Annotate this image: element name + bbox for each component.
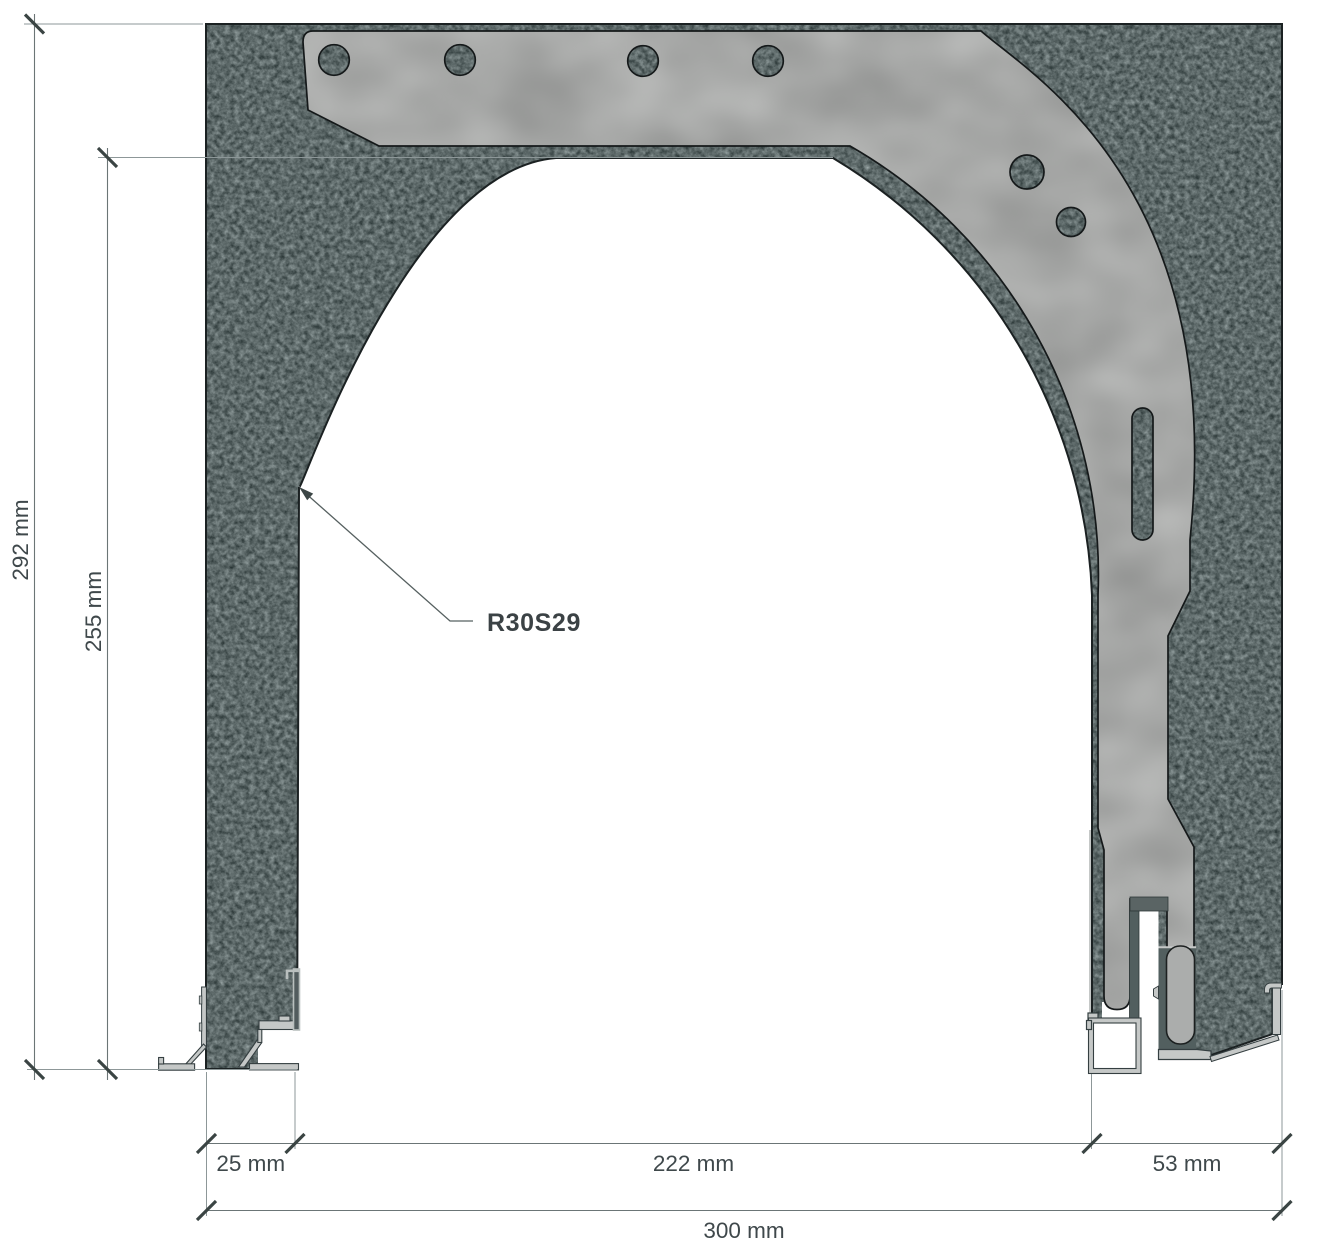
- svg-text:255 mm: 255 mm: [81, 571, 106, 652]
- svg-text:222 mm: 222 mm: [653, 1151, 734, 1176]
- svg-text:53 mm: 53 mm: [1153, 1151, 1222, 1176]
- svg-text:300 mm: 300 mm: [703, 1218, 784, 1243]
- svg-text:25 mm: 25 mm: [216, 1151, 285, 1176]
- svg-text:292 mm: 292 mm: [8, 499, 33, 580]
- svg-text:R30S29: R30S29: [487, 609, 581, 637]
